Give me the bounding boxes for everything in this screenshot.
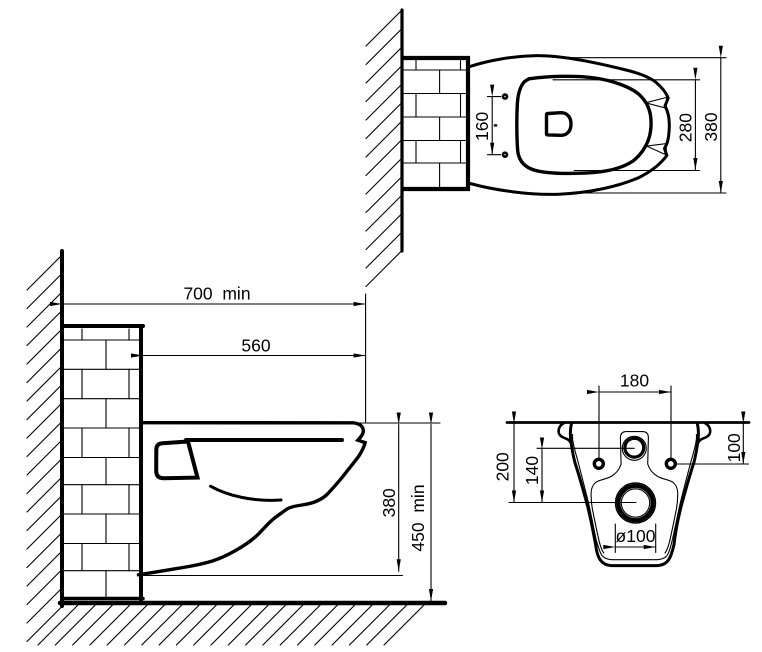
svg-text:100: 100 [724, 433, 744, 462]
svg-text:380: 380 [379, 488, 399, 517]
svg-text:560: 560 [241, 336, 270, 356]
svg-text:140: 140 [522, 456, 542, 485]
svg-text:700 min: 700 min [183, 284, 250, 304]
svg-text:280: 280 [676, 113, 696, 142]
svg-text:ø100: ø100 [616, 526, 656, 546]
svg-text:450 min: 450 min [408, 484, 428, 551]
svg-text:200: 200 [493, 452, 513, 481]
svg-text:160: 160 [472, 112, 492, 141]
svg-text:380: 380 [701, 112, 721, 141]
svg-text:180: 180 [620, 371, 649, 391]
